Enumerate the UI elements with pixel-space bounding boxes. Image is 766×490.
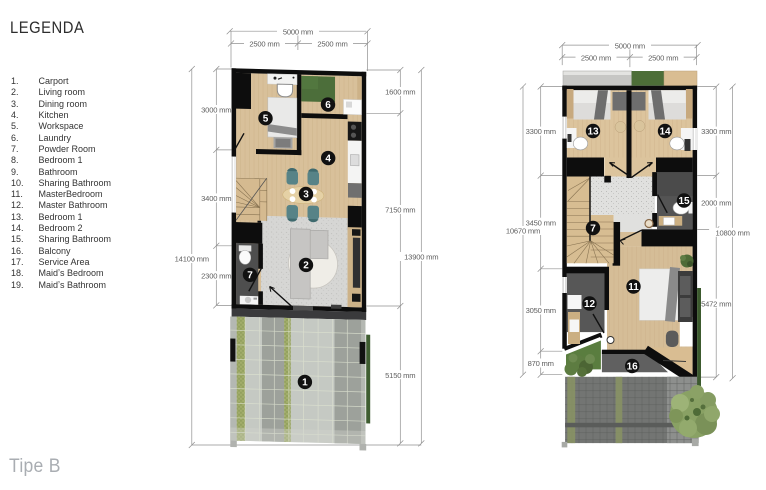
svg-text:5000 mm: 5000 mm — [283, 27, 313, 36]
svg-text:6: 6 — [325, 100, 331, 111]
svg-text:7: 7 — [590, 223, 596, 234]
svg-text:16: 16 — [627, 361, 639, 372]
svg-text:14: 14 — [659, 126, 671, 137]
svg-text:10670 mm: 10670 mm — [506, 227, 540, 236]
svg-text:3300 mm: 3300 mm — [701, 127, 731, 136]
svg-text:5472 mm: 5472 mm — [701, 299, 731, 308]
svg-text:3: 3 — [303, 189, 309, 200]
svg-text:15: 15 — [678, 196, 690, 207]
svg-text:7150 mm: 7150 mm — [385, 206, 415, 215]
svg-text:11: 11 — [628, 282, 639, 293]
svg-text:3000 mm: 3000 mm — [201, 106, 231, 115]
svg-text:3050 mm: 3050 mm — [526, 306, 556, 315]
svg-text:2500 mm: 2500 mm — [249, 40, 279, 49]
svg-text:2500 mm: 2500 mm — [581, 53, 611, 62]
svg-text:14100 mm: 14100 mm — [175, 255, 209, 264]
svg-text:1: 1 — [302, 377, 308, 388]
svg-text:7: 7 — [247, 270, 253, 281]
svg-text:2500 mm: 2500 mm — [317, 40, 347, 49]
svg-text:2: 2 — [303, 260, 309, 271]
svg-text:5: 5 — [263, 114, 269, 125]
svg-text:13900 mm: 13900 mm — [404, 253, 438, 262]
svg-text:4: 4 — [325, 153, 331, 164]
svg-text:13: 13 — [587, 126, 599, 137]
svg-text:5000 mm: 5000 mm — [615, 41, 645, 50]
svg-text:2000 mm: 2000 mm — [701, 199, 731, 208]
svg-text:870 mm: 870 mm — [528, 359, 554, 368]
svg-text:3400 mm: 3400 mm — [201, 194, 231, 203]
svg-text:1600 mm: 1600 mm — [385, 88, 415, 97]
svg-text:5150 mm: 5150 mm — [385, 371, 415, 380]
svg-text:10800 mm: 10800 mm — [715, 228, 749, 237]
svg-text:3300 mm: 3300 mm — [526, 127, 556, 136]
svg-text:12: 12 — [584, 299, 596, 310]
svg-text:2500 mm: 2500 mm — [648, 53, 678, 62]
svg-text:2300 mm: 2300 mm — [201, 272, 231, 281]
